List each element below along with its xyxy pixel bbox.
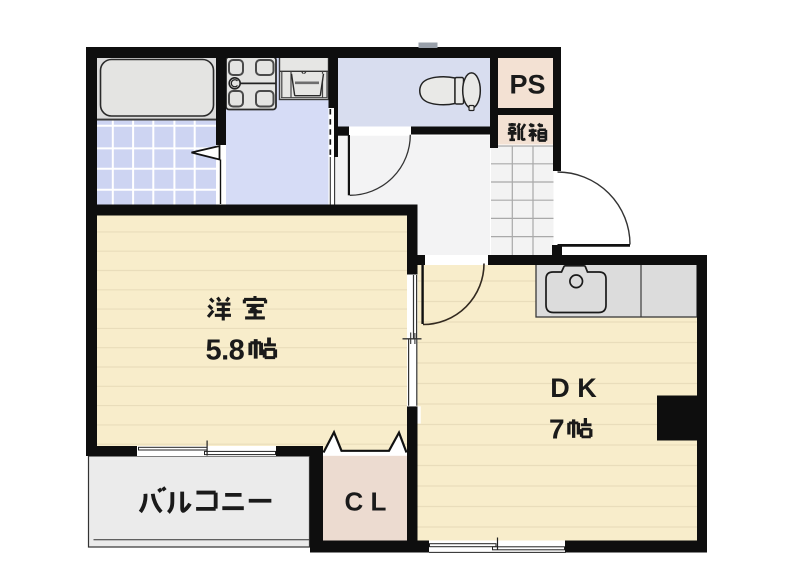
svg-text:D K: D K xyxy=(550,373,597,403)
svg-text:5.8: 5.8 xyxy=(206,335,245,367)
svg-text:C L: C L xyxy=(345,487,387,517)
svg-text:7: 7 xyxy=(549,414,565,445)
svg-text:PS: PS xyxy=(509,70,545,100)
